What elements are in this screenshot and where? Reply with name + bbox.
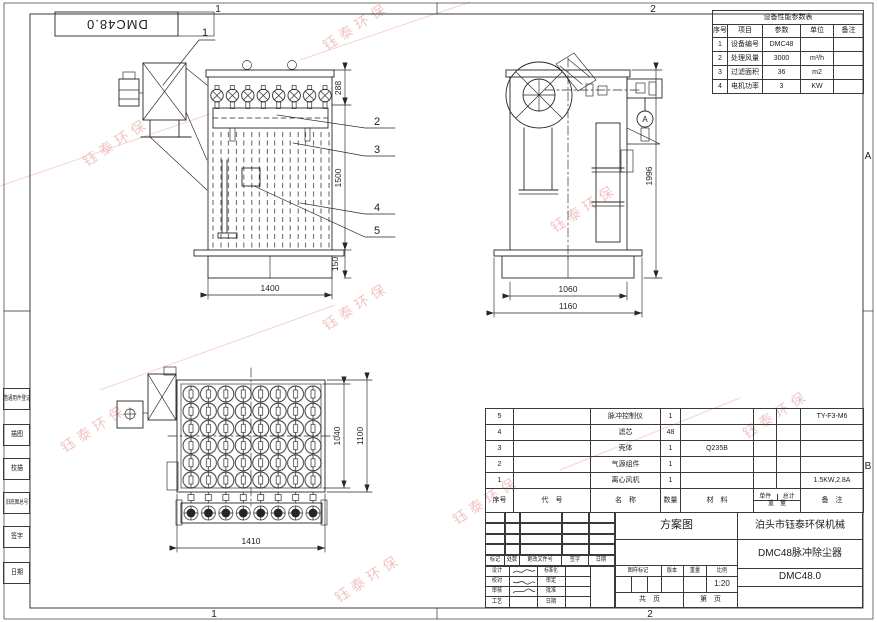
param-row: 4电机功率3KW xyxy=(713,80,864,94)
sheet-total-cell: 共 页 xyxy=(615,592,684,608)
cell xyxy=(777,473,801,489)
company-name: 泊头市钰泰环保机械 xyxy=(755,521,845,532)
bom-header-name: 名 称 xyxy=(591,489,661,513)
cell xyxy=(754,473,777,489)
strip-label: 签字 xyxy=(11,533,23,540)
fan-front xyxy=(119,63,207,190)
strip-label: 旧底图总号 xyxy=(5,500,28,506)
balloon-2: 2 xyxy=(374,116,380,128)
dim-front-body-height: 1500 xyxy=(333,168,343,187)
sign-date: 日期 xyxy=(537,596,566,608)
cell: TY-F3-M6 xyxy=(801,409,864,425)
label: 签字 xyxy=(570,557,580,563)
bom-header-seq: 序号 xyxy=(486,489,514,513)
empty-cell xyxy=(661,576,684,593)
dim-side-body-width: 1060 xyxy=(559,284,578,294)
bom-header-material: 材 料 xyxy=(681,489,754,513)
cad-drawing-sheet: 钰泰环保 钰泰环保 钰泰环保 钰泰环保 钰泰环保 钰泰环保 钰泰环保 钰泰环保 xyxy=(0,0,877,622)
front-view: 288 1500 150 1400 1 2 3 4 5 xyxy=(119,27,395,299)
drawing-number: DMC48.0 xyxy=(779,572,821,583)
label: 比例 xyxy=(717,568,727,574)
cell xyxy=(801,457,864,473)
dim-side-total-height: 1996 xyxy=(644,166,654,185)
label: 处数 xyxy=(507,557,517,563)
cell: 电机功率 xyxy=(728,80,763,94)
bom-header-qty: 数量 xyxy=(661,489,681,513)
scale-cell: 1:20 xyxy=(706,576,738,593)
bom-row: 5脉冲控制仪1TY-F3-M6 xyxy=(486,409,864,425)
cell xyxy=(754,457,777,473)
cell: 3 xyxy=(763,80,801,94)
corner-label: DMC48.0 xyxy=(55,12,178,36)
empty-cell xyxy=(647,576,662,593)
cell xyxy=(754,409,777,425)
cell: 3 xyxy=(713,66,728,80)
cell xyxy=(754,441,777,457)
zone-marker-bottom-1: 1 xyxy=(211,609,217,620)
cell: 1 xyxy=(661,441,681,457)
cell: 48 xyxy=(661,425,681,441)
bom-header-row: 序号 代 号 名 称 数量 材 料 单件总计 重 量 备 注 xyxy=(486,489,864,513)
param-row: 1设备编号DMC48 xyxy=(713,38,864,52)
zone-marker-right-a: A xyxy=(865,151,872,162)
sheet-no: 第 页 xyxy=(700,596,721,603)
label: 审核 xyxy=(492,588,502,594)
cell: 4 xyxy=(713,80,728,94)
cell xyxy=(681,425,754,441)
bom-row: 2气源组件1 xyxy=(486,457,864,473)
cell xyxy=(801,425,864,441)
bom-row: 3壳体1Q235B xyxy=(486,441,864,457)
strip-box-common-parts: 借通用件登记 xyxy=(3,388,30,410)
doc-type: 方案图 xyxy=(660,520,693,532)
strip-label: 日期 xyxy=(11,569,23,576)
label: 设计 xyxy=(492,568,502,574)
zone-marker-top-1: 1 xyxy=(215,4,221,15)
cartridge-grid xyxy=(182,385,321,488)
cell xyxy=(834,80,864,94)
label: 校对 xyxy=(492,578,502,584)
cell xyxy=(681,409,754,425)
pulse-valves-row xyxy=(209,85,332,109)
cell: 离心风机 xyxy=(591,473,661,489)
label: 版本 xyxy=(667,568,677,574)
label: 重量 xyxy=(690,568,700,574)
cell: 36 xyxy=(763,66,801,80)
bom-row: 4滤芯48 xyxy=(486,425,864,441)
cell: 3000 xyxy=(763,52,801,66)
param-header-row: 序号 项目 参数 单位 备注 xyxy=(713,25,864,38)
dim-top-width: 1410 xyxy=(242,536,261,546)
empty-cell xyxy=(590,566,615,608)
label: 日期 xyxy=(546,599,556,605)
cell: 3 xyxy=(486,441,514,457)
bom-header-unit-weight: 单件 xyxy=(754,494,778,500)
dim-front-base-height: 150 xyxy=(330,257,340,271)
strip-label: 借通用件登记 xyxy=(3,396,30,402)
balloon-1: 1 xyxy=(202,27,208,39)
cell xyxy=(514,457,591,473)
zone-marker-bottom-2: 2 xyxy=(647,609,653,620)
fan-side xyxy=(506,53,596,194)
cell xyxy=(834,38,864,52)
parameter-table: 设备性能参数表 序号 项目 参数 单位 备注 1设备编号DMC48 2处理风量3… xyxy=(712,10,864,94)
cell xyxy=(754,425,777,441)
cell xyxy=(777,425,801,441)
cell xyxy=(777,409,801,425)
revision-grid xyxy=(485,512,615,555)
cell: KW xyxy=(801,80,834,94)
param-row: 2处理风量3000m³/h xyxy=(713,52,864,66)
empty-cell xyxy=(615,576,632,593)
company-cell: 泊头市钰泰环保机械 xyxy=(737,512,863,540)
cell xyxy=(514,409,591,425)
strip-label: 描图 xyxy=(11,431,23,438)
doc-type-cell: 方案图 xyxy=(615,512,738,540)
watermark-strokes xyxy=(0,2,740,470)
empty-cell xyxy=(683,576,707,593)
balloon-5: 5 xyxy=(374,225,380,237)
param-table-title: 设备性能参数表 xyxy=(713,11,864,25)
rev-header-count: 处数 xyxy=(504,555,520,566)
cell: 处理风量 xyxy=(728,52,763,66)
valve-stems xyxy=(182,492,321,503)
bom-header-weight-group: 单件总计 重 量 xyxy=(754,489,801,513)
param-header: 项目 xyxy=(728,25,763,38)
product-name: DMC48脉冲除尘器 xyxy=(758,549,842,560)
filter-bags xyxy=(209,132,332,248)
dim-top-outer-depth: 1100 xyxy=(355,427,365,446)
cell: DMC48 xyxy=(763,38,801,52)
strip-box-date: 日期 xyxy=(3,562,30,584)
pulse-valves-top xyxy=(182,503,321,523)
cell: 设备编号 xyxy=(728,38,763,52)
label: 工艺 xyxy=(492,599,502,605)
cell: 1 xyxy=(713,38,728,52)
bom-table: 5脉冲控制仪1TY-F3-M6 4滤芯48 3壳体1Q235B 2气源组件1 1… xyxy=(485,408,864,513)
empty-cell xyxy=(737,586,863,608)
empty-cell xyxy=(631,576,648,593)
cell: 滤芯 xyxy=(591,425,661,441)
balloon-4: 4 xyxy=(374,202,380,214)
cell: 1 xyxy=(486,473,514,489)
fan-top xyxy=(117,367,176,428)
zone-marker-top-2: 2 xyxy=(650,4,656,15)
strip-box-old-drawing-no: 旧底图总号 xyxy=(3,492,30,514)
param-header: 参数 xyxy=(763,25,801,38)
cell: 1.5KW,2.8A xyxy=(801,473,864,489)
rev-header-mark: 标记 xyxy=(485,555,505,566)
cell: 过滤面积 xyxy=(728,66,763,80)
balloon-3: 3 xyxy=(374,144,380,156)
bom-header-remark: 备 注 xyxy=(801,489,864,513)
cell xyxy=(681,457,754,473)
strip-box-signature: 签字 xyxy=(3,526,30,548)
cell: 4 xyxy=(486,425,514,441)
label: 图样标记 xyxy=(628,568,648,574)
cell: 1 xyxy=(661,409,681,425)
bom-header-weight: 重 量 xyxy=(754,501,800,507)
cell: 5 xyxy=(486,409,514,425)
cell xyxy=(834,52,864,66)
cell: Q235B xyxy=(681,441,754,457)
rev-header-docno: 更改文件号 xyxy=(519,555,562,566)
label: 审定 xyxy=(546,578,556,584)
label: 日期 xyxy=(596,557,606,563)
rev-header-date: 日期 xyxy=(588,555,615,566)
cell: 脉冲控制仪 xyxy=(591,409,661,425)
strip-box-trace: 描图 xyxy=(3,424,30,446)
signature-area: 设计 校对 审核 工艺 标准化 审定 批准 日期 xyxy=(485,566,615,608)
cell: 壳体 xyxy=(591,441,661,457)
cell: 气源组件 xyxy=(591,457,661,473)
label: 批准 xyxy=(546,588,556,594)
side-view: A 1996 1060 1160 xyxy=(494,53,662,317)
empty-cell xyxy=(565,596,591,608)
label: 标记 xyxy=(490,557,500,563)
bom-header-code: 代 号 xyxy=(514,489,591,513)
label: 更改文件号 xyxy=(528,557,554,563)
title-block: 标记 处数 更改文件号 签字 日期 设计 校对 审核 工艺 标准化 审定 批准 … xyxy=(485,512,863,608)
zone-marker-right-b: B xyxy=(865,461,872,472)
empty-cell xyxy=(509,596,538,608)
cell: 2 xyxy=(713,52,728,66)
rev-header-sign: 签字 xyxy=(561,555,589,566)
drawing-no-cell: DMC48.0 xyxy=(737,568,863,587)
dim-top-inner-depth: 1040 xyxy=(332,426,342,445)
strip-box-check-trace: 校描 xyxy=(3,458,30,480)
cell: m³/h xyxy=(801,52,834,66)
param-header: 单位 xyxy=(801,25,834,38)
corner-label-text: DMC48.0 xyxy=(86,17,148,32)
param-title-row: 设备性能参数表 xyxy=(713,11,864,25)
dim-side-base-width: 1160 xyxy=(559,301,578,311)
top-view: 1040 1100 1410 xyxy=(117,367,372,552)
product-cell: DMC48脉冲除尘器 xyxy=(737,539,863,569)
cell: m2 xyxy=(801,66,834,80)
cell xyxy=(801,441,864,457)
cell xyxy=(801,38,834,52)
cell xyxy=(834,66,864,80)
cell xyxy=(777,441,801,457)
side-dims xyxy=(494,70,662,317)
empty-cell xyxy=(615,539,738,566)
air-piping xyxy=(545,79,662,144)
dim-front-width: 1400 xyxy=(261,283,280,293)
param-header: 备注 xyxy=(834,25,864,38)
bom-header-total-weight: 总计 xyxy=(778,494,801,500)
cell xyxy=(514,441,591,457)
cell xyxy=(514,425,591,441)
param-header: 序号 xyxy=(713,25,728,38)
bom-row: 1离心风机11.5KW,2.8A xyxy=(486,473,864,489)
param-row: 3过滤面积36m2 xyxy=(713,66,864,80)
sheet-no-cell: 第 页 xyxy=(683,592,738,608)
cell: 2 xyxy=(486,457,514,473)
cell: 1 xyxy=(661,473,681,489)
detail-balloon-label: A xyxy=(642,115,648,124)
cell xyxy=(514,473,591,489)
sign-process: 工艺 xyxy=(485,596,510,608)
sheet-total: 共 页 xyxy=(639,596,660,603)
cell: 1 xyxy=(661,457,681,473)
scale-value: 1:20 xyxy=(714,580,730,588)
label: 标准化 xyxy=(545,568,559,574)
dim-front-top-section: 288 xyxy=(333,81,343,95)
strip-label: 校描 xyxy=(11,465,23,472)
cell xyxy=(777,457,801,473)
cell xyxy=(681,473,754,489)
